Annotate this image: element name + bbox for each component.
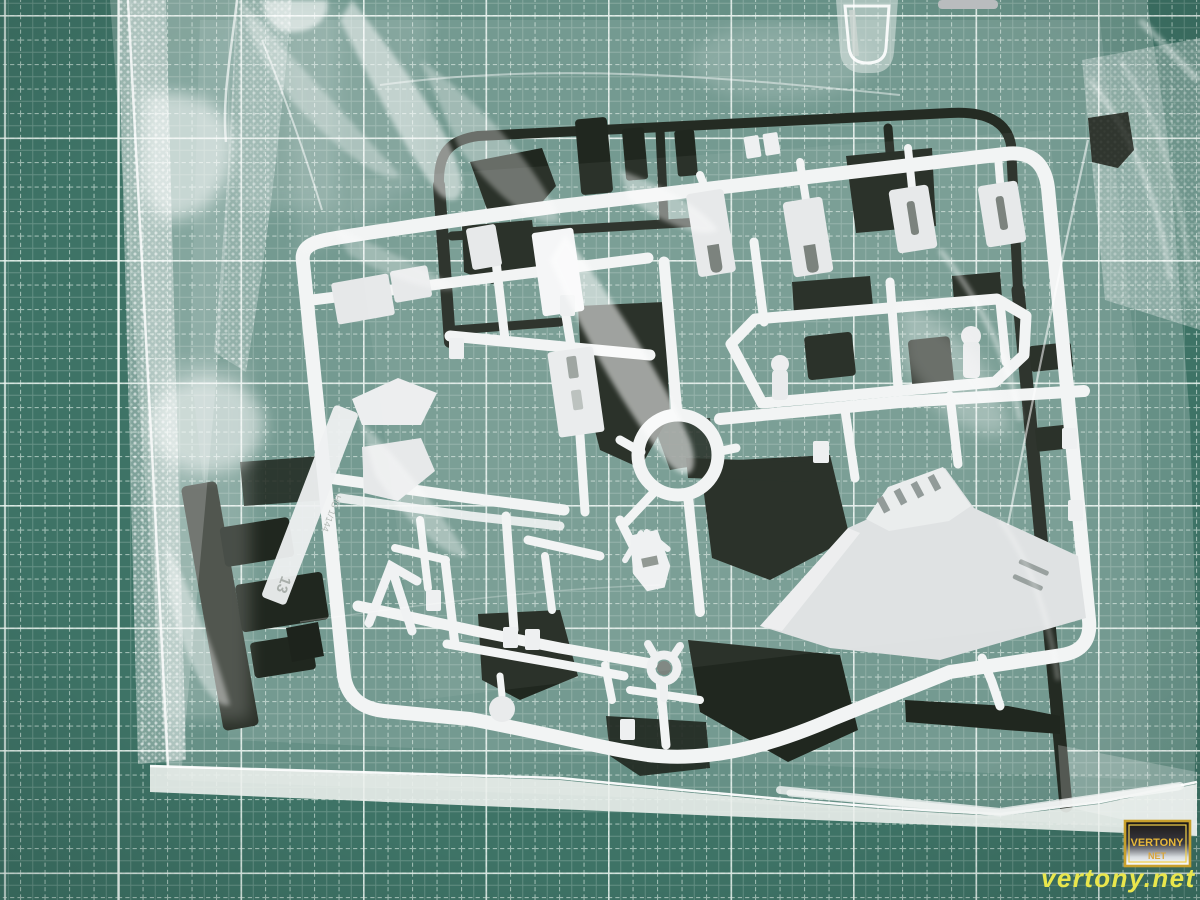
svg-text:NET: NET	[1148, 851, 1167, 861]
svg-text:VERTONY: VERTONY	[1131, 837, 1185, 849]
svg-text:vertony.net: vertony.net	[1041, 863, 1196, 893]
